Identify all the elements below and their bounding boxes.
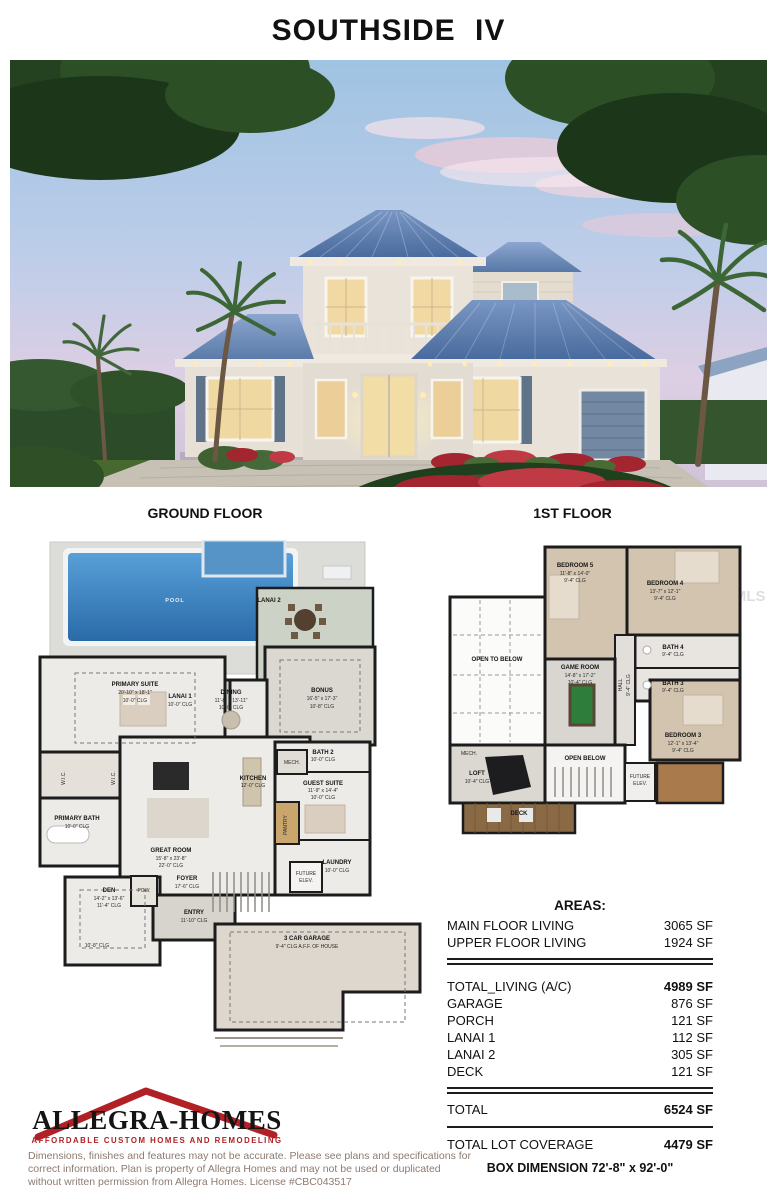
- area-label: UPPER FLOOR LIVING: [447, 934, 586, 951]
- area-row-lot-coverage: TOTAL LOT COVERAGE4479 SF: [447, 1136, 713, 1153]
- room-label: DEN: [103, 888, 116, 894]
- room-label: GAME ROOM: [561, 665, 599, 671]
- room-dims: 11'-9" x 14'-4": [308, 788, 339, 794]
- room-label: POOL: [165, 598, 185, 604]
- first-floor-heading: 1ST FLOOR: [430, 505, 715, 521]
- room-dims: 11'-8" x 13'-11": [215, 698, 248, 704]
- room-label: W.I.C.: [61, 771, 67, 785]
- room-label: GUEST SUITE: [303, 781, 343, 787]
- box-dimension: BOX DIMENSION 72'-8" x 92'-0": [447, 1160, 713, 1177]
- area-label: TOTAL_LIVING (A/C): [447, 978, 572, 995]
- room-label: FUTURE: [296, 871, 317, 877]
- room-clg: 9'-4" CLG: [672, 748, 694, 754]
- room-label: OPEN TO BELOW: [472, 657, 523, 663]
- room-clg: 9'-4" CLG: [564, 578, 586, 584]
- room-label: LANAI 1: [168, 694, 192, 700]
- house-rendering-image: [10, 60, 767, 487]
- room-clg: 10'-0" CLG: [168, 702, 193, 708]
- area-value: 1924 SF: [664, 934, 713, 951]
- area-label: LANAI 1: [447, 1029, 495, 1046]
- area-row: LANAI 2305 SF: [447, 1046, 713, 1063]
- room-label: HALL: [618, 679, 624, 692]
- area-value: 876 SF: [671, 995, 713, 1012]
- room-label: BATH 3: [662, 681, 684, 687]
- room-dims: 16'-5" x 17'-3": [307, 696, 338, 702]
- room-clg: 10'-4" CLG: [465, 779, 490, 785]
- logo-name: ALLEGRA-HOMES: [28, 1105, 286, 1136]
- room-label: BATH 4: [662, 645, 684, 651]
- area-value: 4989 SF: [664, 978, 713, 995]
- room-label: BEDROOM 3: [665, 733, 702, 739]
- hero-photo: [10, 60, 767, 487]
- room-clg: 10'-8" CLG: [310, 704, 335, 710]
- disclaimer-text: Dimensions, finishes and features may no…: [28, 1150, 476, 1189]
- room-label: MECH.: [284, 760, 300, 766]
- area-row-total: TOTAL6524 SF: [447, 1101, 713, 1118]
- first-floor-plan: BEDROOM 5 11'-8" x 14'-0" 9'-4" CLG BEDR…: [435, 535, 745, 835]
- room-label: BEDROOM 5: [557, 563, 594, 569]
- room-label: 3 CAR GARAGE: [284, 936, 330, 942]
- room-label: LOFT: [469, 771, 485, 777]
- area-value: 112 SF: [672, 1029, 713, 1046]
- room-clg: 10'-0" CLG: [65, 824, 90, 830]
- room-label: BEDROOM 4: [647, 581, 684, 587]
- area-row: DECK121 SF: [447, 1063, 713, 1080]
- area-label: TOTAL: [447, 1101, 488, 1118]
- room-dims: 14'-2" x 13'-6": [94, 896, 125, 902]
- logo-tagline: AFFORDABLE CUSTOM HOMES AND REMODELING: [28, 1136, 286, 1145]
- room-dims: 20'-10" x 18'-1": [118, 690, 152, 696]
- room-label: MECH.: [461, 751, 477, 757]
- area-row: GARAGE876 SF: [447, 995, 713, 1012]
- room-label: DINING: [221, 690, 242, 696]
- room-note: 10'-8" CLG: [85, 943, 110, 949]
- area-row: UPPER FLOOR LIVING1924 SF: [447, 934, 713, 951]
- room-label: BONUS: [311, 688, 333, 694]
- room-clg: 12'-0" CLG: [241, 783, 266, 789]
- room-clg: 11'-4" CLG: [97, 903, 121, 909]
- area-value: 121 SF: [671, 1012, 713, 1029]
- ground-floor-plan: POOL LANAI 2: [35, 540, 425, 1085]
- room-clg: 22'-0" CLG: [159, 863, 184, 869]
- room-label: LANAI 2: [257, 598, 281, 604]
- room-label: LAUNDRY: [322, 860, 351, 866]
- area-value: 4479 SF: [664, 1136, 713, 1153]
- room-clg: 9'-4" CLG: [654, 596, 676, 602]
- table-divider: [447, 1087, 713, 1094]
- area-value: 305 SF: [671, 1046, 713, 1063]
- area-row: MAIN FLOOR LIVING3065 SF: [447, 917, 713, 934]
- room-clg: 11'-10" CLG: [181, 918, 208, 924]
- area-label: DECK: [447, 1063, 483, 1080]
- areas-table: AREAS: MAIN FLOOR LIVING3065 SF UPPER FL…: [447, 897, 713, 1177]
- hedge-right: [650, 400, 767, 464]
- room-clg: 9'-4" CLG: [626, 674, 632, 696]
- room-clg: 10'-4" CLG: [568, 680, 593, 686]
- room-dims: 15'-8" x 23'-8": [156, 856, 187, 862]
- room-label: BATH 2: [312, 750, 334, 756]
- room-label: ELEV.: [299, 878, 313, 884]
- room-label: W.I.C.: [111, 771, 117, 785]
- area-label: GARAGE: [447, 995, 503, 1012]
- room-clg: 10'-0" CLG: [123, 698, 148, 704]
- room-label: PRIMARY BATH: [54, 816, 99, 822]
- room-label: FUTURE: [630, 774, 651, 780]
- area-row: PORCH121 SF: [447, 1012, 713, 1029]
- area-value: 3065 SF: [664, 917, 713, 934]
- room-clg: 10'-0" CLG: [311, 757, 336, 763]
- area-row: TOTAL_LIVING (A/C)4989 SF: [447, 978, 713, 995]
- area-label: PORCH: [447, 1012, 494, 1029]
- table-divider: [447, 958, 713, 965]
- area-label: MAIN FLOOR LIVING: [447, 917, 574, 934]
- allegra-homes-logo: ALLEGRA-HOMES AFFORDABLE CUSTOM HOMES AN…: [28, 1083, 286, 1155]
- page-title: SOUTHSIDE IV: [0, 14, 777, 48]
- room-clg: 17'-6" CLG: [175, 884, 200, 890]
- areas-heading: AREAS:: [447, 897, 713, 914]
- room-clg: 10'-0" CLG: [311, 795, 336, 801]
- area-value: 121 SF: [671, 1063, 713, 1080]
- room-dims: 13'-7" x 12'-1": [650, 589, 681, 595]
- room-label: POW.: [137, 888, 150, 894]
- room-label: KITCHEN: [240, 776, 267, 782]
- room-clg: 10'-0" CLG: [325, 868, 350, 874]
- room-label: OPEN BELOW: [564, 756, 605, 762]
- room-label: ENTRY: [184, 910, 204, 916]
- flyer-page: SOUTHSIDE IV: [0, 0, 777, 1200]
- table-divider: [447, 1126, 713, 1128]
- room-label: FOYER: [177, 876, 198, 882]
- area-row: LANAI 1112 SF: [447, 1029, 713, 1046]
- room-clg: 9'-4" CLG: [662, 652, 684, 658]
- room-clg: 9'-4" CLG: [662, 688, 684, 694]
- room-label: DECK: [510, 811, 528, 817]
- room-label: PRIMARY SUITE: [112, 682, 159, 688]
- room-dims: 11'-8" x 14'-0": [560, 571, 591, 577]
- room-dims: 12'-1" x 13'-4": [668, 741, 699, 747]
- ground-floor-heading: GROUND FLOOR: [30, 505, 380, 521]
- area-value: 6524 SF: [664, 1101, 713, 1118]
- room-label: ELEV.: [633, 781, 647, 787]
- area-label: LANAI 2: [447, 1046, 495, 1063]
- room-clg: 9'-4" CLG A.F.F. OF HOUSE: [276, 944, 339, 950]
- room-label: GREAT ROOM: [151, 848, 192, 854]
- room-clg: 10'-0" CLG: [219, 705, 244, 711]
- room-label: PANTRY: [283, 814, 289, 834]
- room-dims: 14'-8" x 17'-2": [565, 673, 596, 679]
